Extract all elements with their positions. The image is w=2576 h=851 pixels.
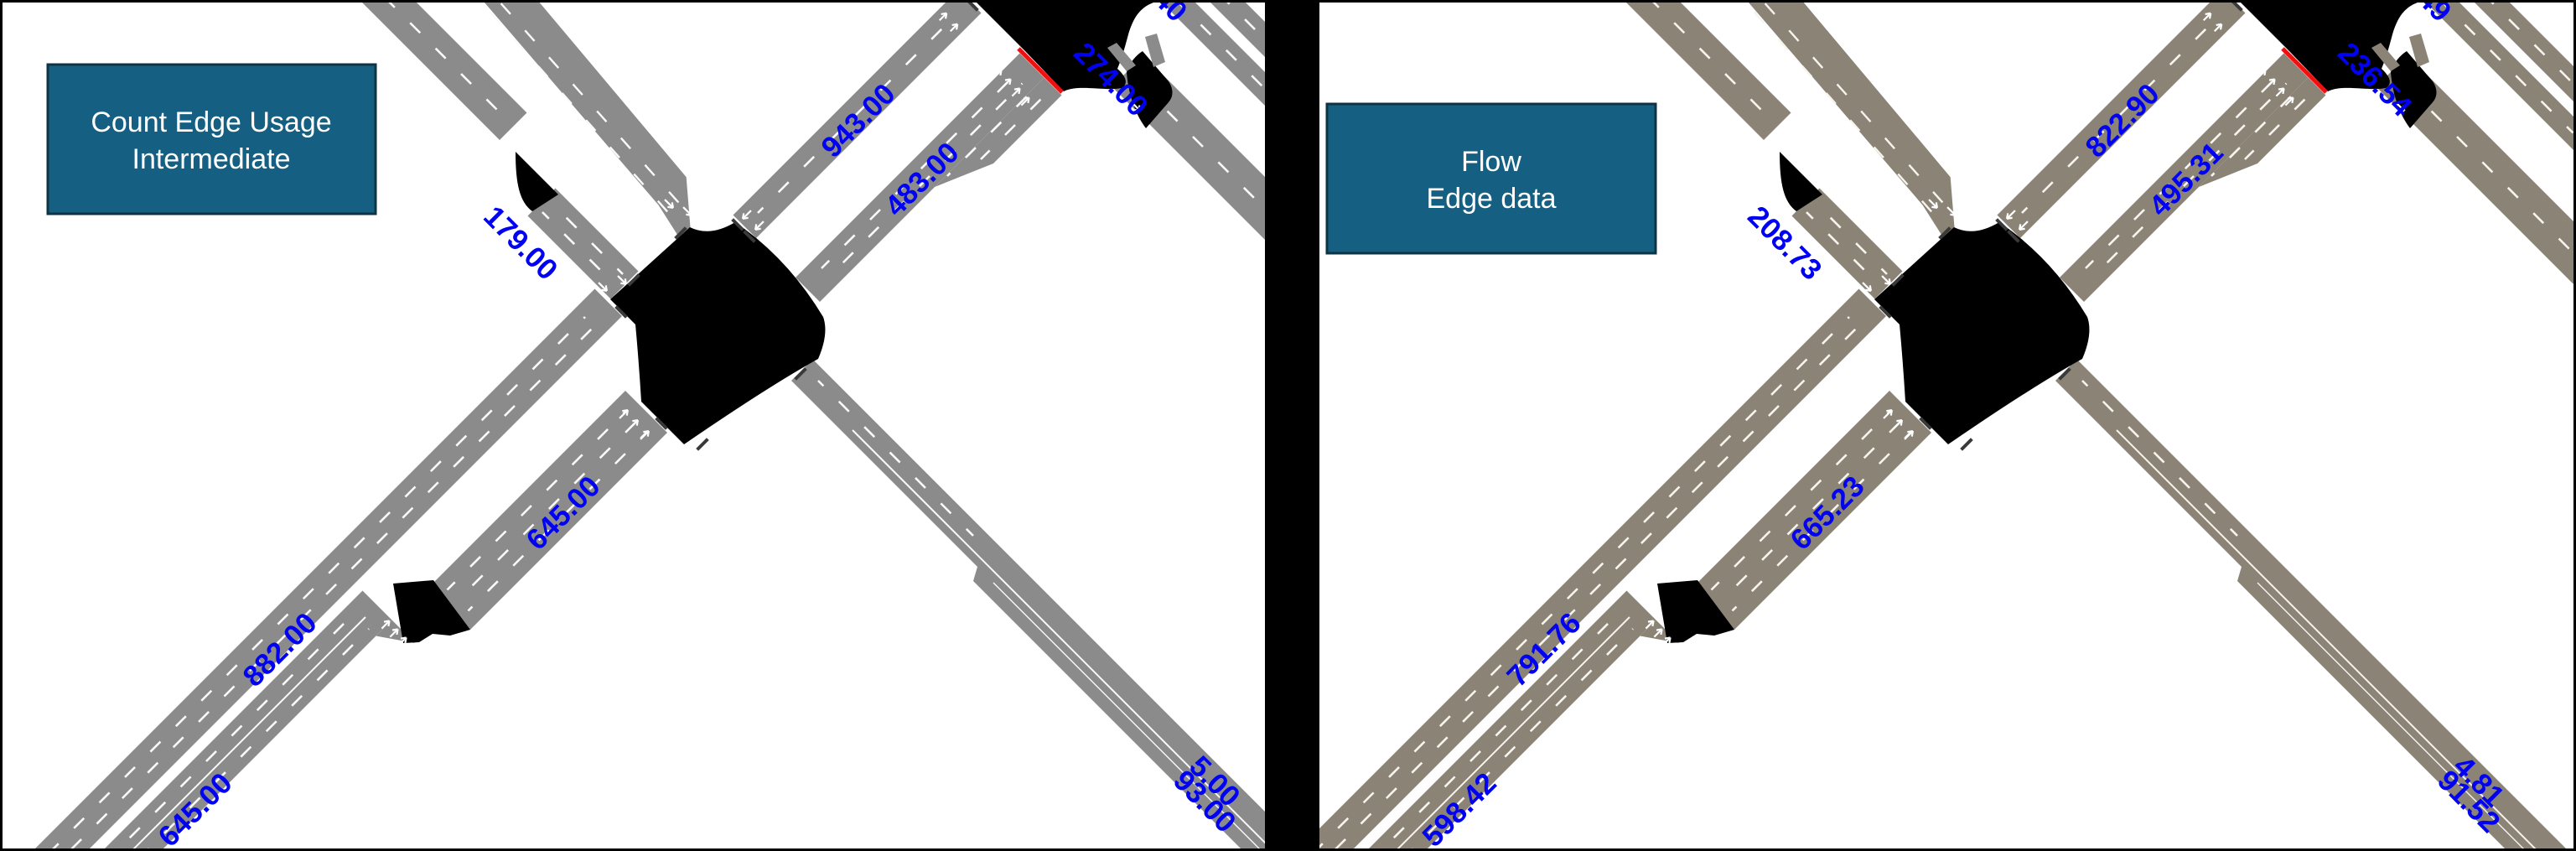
svg-text:Count Edge Usage: Count Edge Usage xyxy=(91,106,331,138)
svg-text:Edge data: Edge data xyxy=(1426,183,1556,215)
svg-text:Flow: Flow xyxy=(1461,146,1521,178)
svg-text:Intermediate: Intermediate xyxy=(132,143,291,175)
